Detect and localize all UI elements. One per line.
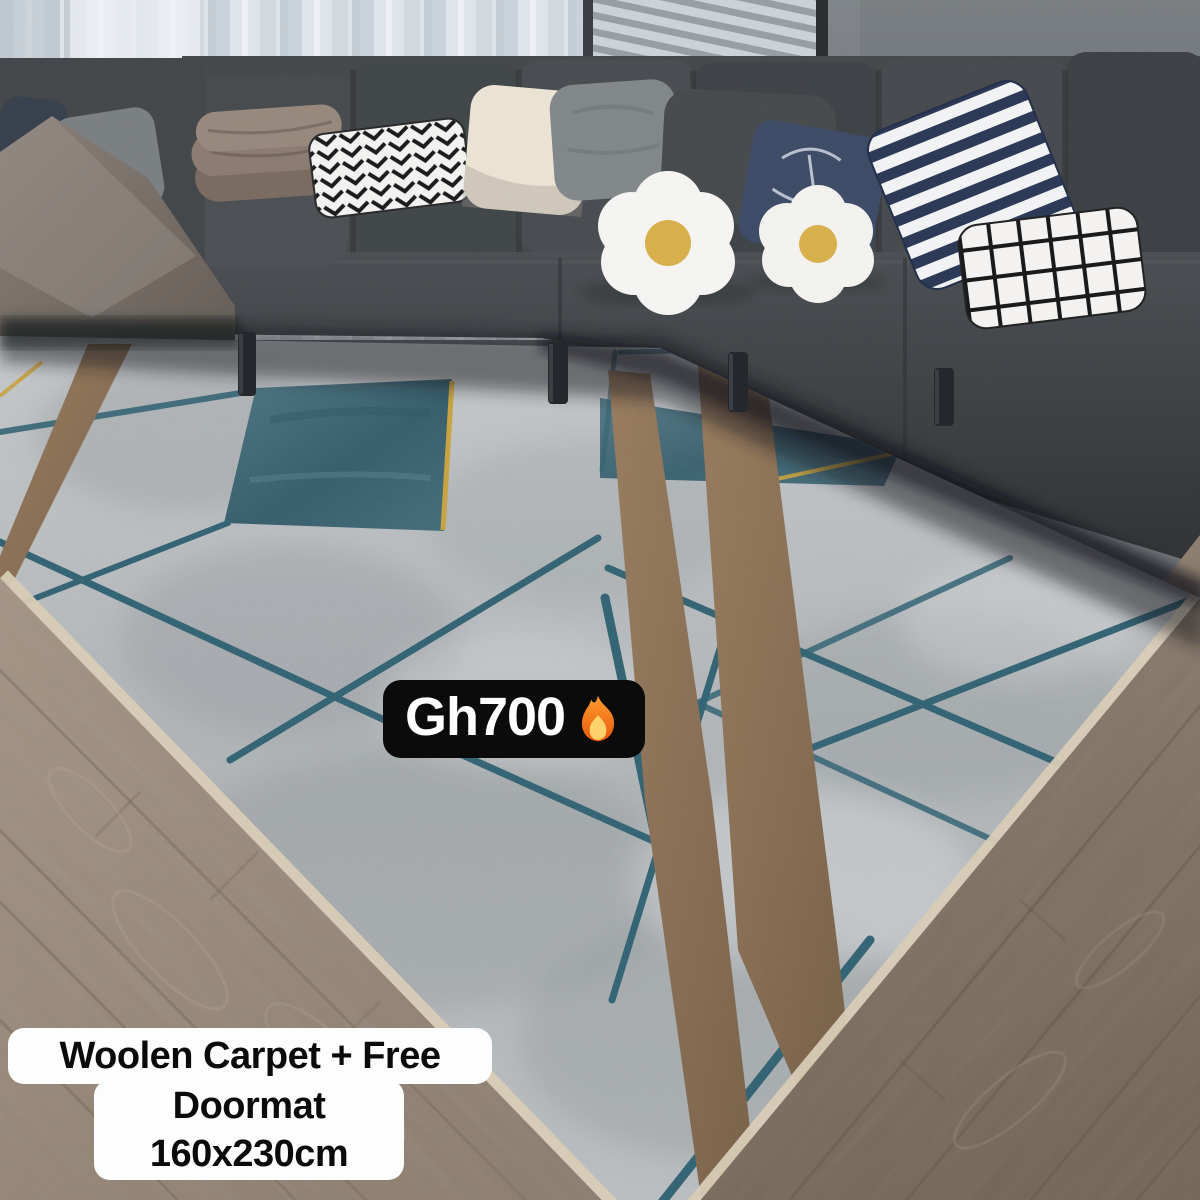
price-badge: Gh700 xyxy=(383,680,645,758)
product-label-line1: Woolen Carpet + Free xyxy=(8,1028,492,1084)
product-label-line3: 160x230cm xyxy=(150,1130,348,1178)
product-label: Woolen Carpet + Free Doormat 160x230cm xyxy=(0,1020,520,1200)
price-text: Gh700 xyxy=(405,690,565,744)
product-label-lower: Doormat 160x230cm xyxy=(94,1080,404,1180)
product-label-line2: Doormat xyxy=(173,1082,326,1130)
product-photo: Gh700 Woolen Carpet + Free Doormat 160x2… xyxy=(0,0,1200,1200)
fire-icon xyxy=(573,692,623,746)
